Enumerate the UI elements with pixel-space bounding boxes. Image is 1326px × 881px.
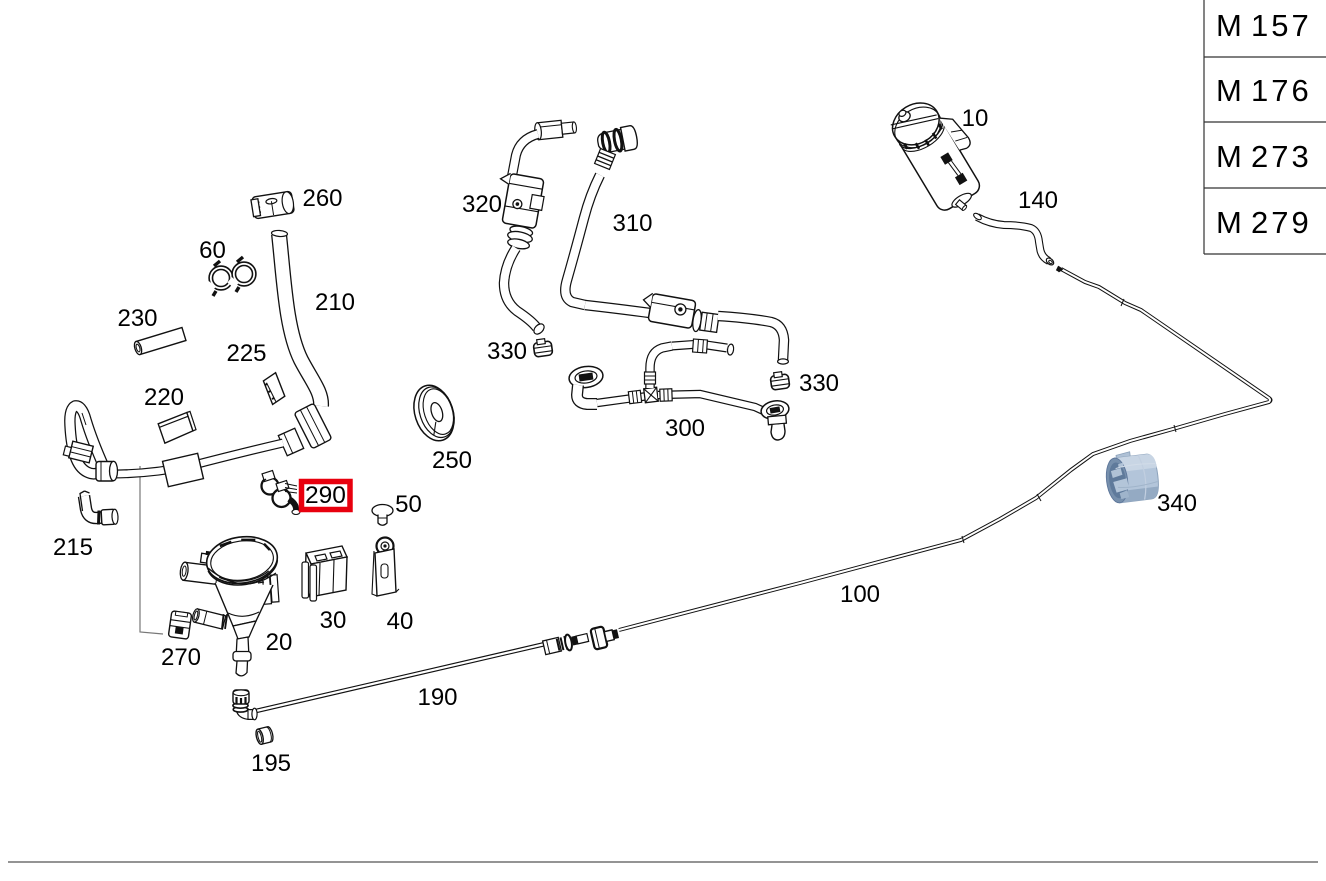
svg-text:40: 40 bbox=[387, 608, 414, 635]
svg-text:220: 220 bbox=[144, 384, 184, 411]
svg-text:M: M bbox=[1216, 205, 1245, 240]
svg-text:340: 340 bbox=[1157, 490, 1197, 517]
svg-text:195: 195 bbox=[251, 750, 291, 777]
svg-text:157: 157 bbox=[1251, 8, 1312, 43]
svg-text:M: M bbox=[1216, 139, 1245, 174]
svg-text:300: 300 bbox=[665, 415, 705, 442]
svg-text:30: 30 bbox=[320, 607, 347, 634]
svg-text:140: 140 bbox=[1018, 187, 1058, 214]
svg-text:273: 273 bbox=[1251, 139, 1312, 174]
svg-text:100: 100 bbox=[840, 581, 880, 608]
svg-text:270: 270 bbox=[161, 644, 201, 671]
svg-text:215: 215 bbox=[53, 534, 93, 561]
svg-text:176: 176 bbox=[1251, 73, 1312, 108]
svg-text:10: 10 bbox=[962, 105, 989, 132]
svg-text:210: 210 bbox=[315, 289, 355, 316]
svg-text:279: 279 bbox=[1251, 205, 1312, 240]
svg-text:330: 330 bbox=[487, 338, 527, 365]
svg-text:330: 330 bbox=[799, 370, 839, 397]
svg-text:M: M bbox=[1216, 8, 1245, 43]
svg-text:310: 310 bbox=[612, 210, 652, 237]
svg-text:20: 20 bbox=[266, 629, 293, 656]
svg-text:50: 50 bbox=[395, 491, 422, 518]
svg-text:225: 225 bbox=[226, 340, 266, 367]
svg-text:320: 320 bbox=[462, 191, 502, 218]
svg-text:250: 250 bbox=[432, 447, 472, 474]
svg-text:190: 190 bbox=[417, 684, 457, 711]
svg-text:M: M bbox=[1216, 73, 1245, 108]
svg-text:290: 290 bbox=[305, 482, 346, 509]
svg-text:60: 60 bbox=[199, 237, 226, 264]
svg-text:230: 230 bbox=[117, 305, 157, 332]
svg-text:260: 260 bbox=[302, 185, 342, 212]
